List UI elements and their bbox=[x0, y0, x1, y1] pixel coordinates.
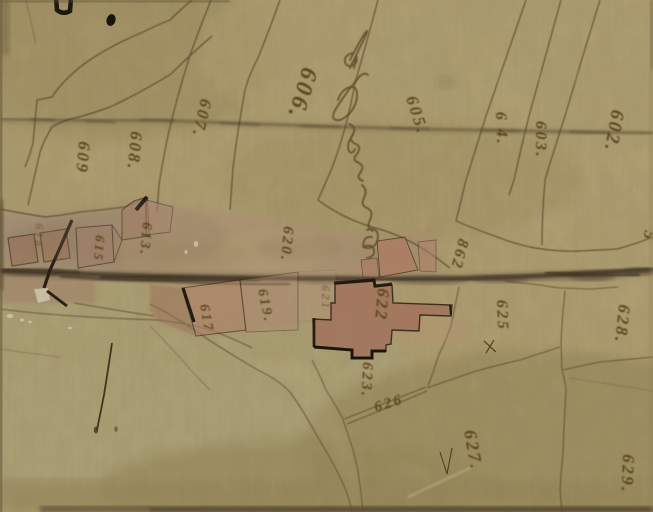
svg-text:622: 622 bbox=[371, 288, 393, 323]
svg-text:615: 615 bbox=[91, 235, 108, 263]
svg-text:613.: 613. bbox=[136, 222, 154, 258]
svg-text:623.: 623. bbox=[358, 362, 375, 399]
svg-text:6 4.: 6 4. bbox=[492, 112, 510, 147]
svg-text:629.: 629. bbox=[618, 454, 638, 494]
svg-text:603.: 603. bbox=[532, 121, 549, 159]
svg-text:609: 609 bbox=[72, 141, 94, 176]
svg-text:625: 625 bbox=[493, 300, 511, 332]
svg-text:608.: 608. bbox=[124, 131, 146, 172]
svg-text:621: 621 bbox=[319, 285, 333, 311]
svg-text:620.: 620. bbox=[277, 226, 296, 264]
svg-text:618: 618 bbox=[31, 223, 47, 250]
